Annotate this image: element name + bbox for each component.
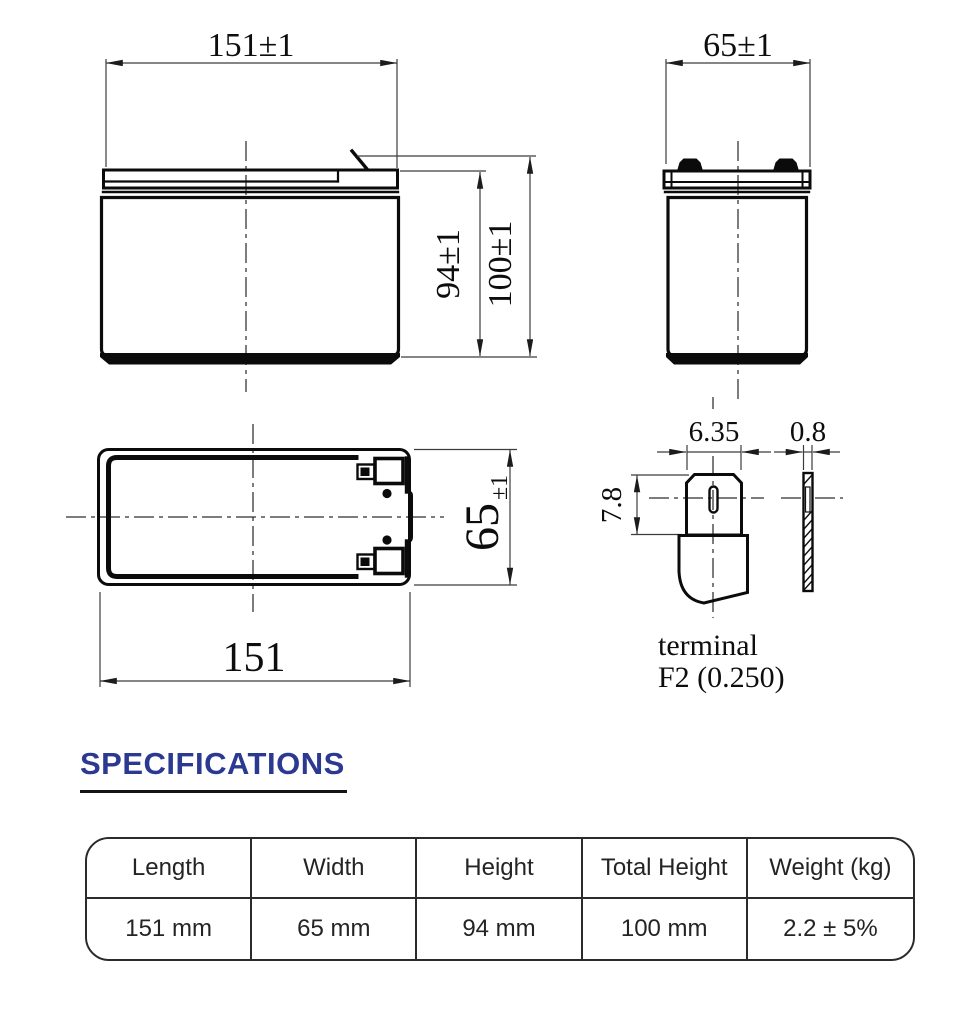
spec-col-header-weight: Weight (kg) [748,839,913,899]
terminal-block-top [375,459,403,484]
vent-dot-bottom [382,535,391,544]
spec-col-header-width: Width [252,839,417,899]
vent-dot-top [382,489,391,498]
spec-value-total-height: 100 mm [583,899,748,959]
spec-value-height: 94 mm [417,899,582,959]
terminal-tab-flag [352,151,367,169]
svg-text:±1: ±1 [487,475,513,500]
battery-body-side [102,198,399,357]
spec-col-header-length: Length [87,839,252,899]
dim-label-width: 65±1 [703,27,773,64]
svg-text:65: 65 [456,503,509,551]
terminal-type-label: F2 (0.250) [658,661,785,694]
terminal-label: terminal [658,629,758,662]
terminal-detail: 6.35 0.8 7.8 [596,397,843,694]
dim-label-total-height: 100±1 [482,221,519,308]
battery-foot-side [100,353,400,365]
battery-lid-side [104,170,398,188]
battery-dimension-drawing: 151±1 94±1 100±1 65±1 [0,0,964,724]
spec-value-length: 151 mm [87,899,252,959]
end-view: 65±1 [664,27,810,404]
specifications-heading: SPECIFICATIONS [80,746,347,793]
battery-body-end [668,198,807,357]
specifications-table: Length Width Height Total Height Weight … [85,837,915,961]
dim-label-top-width: 65 ±1 [456,475,513,551]
terminal-post-left [677,159,703,172]
dim-label-terminal-height: 7.8 [596,487,628,523]
front-view: 151±1 94±1 100±1 [100,27,537,392]
dim-label-length: 151±1 [208,27,295,64]
terminal-slot-side [806,487,811,512]
spec-col-header-total-height: Total Height [583,839,748,899]
dim-label-terminal-thickness: 0.8 [790,416,826,448]
terminal-block-bottom [375,549,403,574]
dim-label-top-length: 151 [223,635,286,681]
dim-label-height: 94±1 [430,229,467,299]
spec-value-weight: 2.2 ± 5% [748,899,913,959]
dim-label-terminal-width: 6.35 [689,416,740,448]
spec-value-width: 65 mm [252,899,417,959]
battery-spec-sheet: 151±1 94±1 100±1 65±1 [0,0,964,1020]
battery-foot-end [666,353,808,365]
battery-lid-end [664,171,810,188]
top-view: 65 ±1 151 [66,424,517,687]
spec-col-header-height: Height [417,839,582,899]
terminal-post-right [773,159,799,172]
terminal-blade-front [687,475,742,536]
